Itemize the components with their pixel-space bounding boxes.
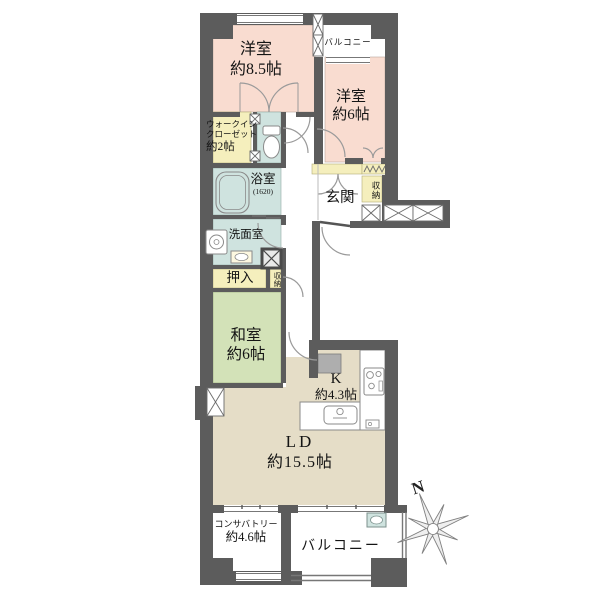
room-label-bedroom2: 洋室 約6帖	[301, 88, 401, 125]
floor-plan: 洋室 約8.5帖 バルコニー 洋室 約6帖 ウォークイン クローゼット 約2帖 …	[0, 0, 600, 600]
washroom-shaft	[262, 249, 281, 268]
room-label-conservatory: コンサバトリー 約4.6帖	[209, 519, 283, 545]
toilet-icon	[263, 126, 280, 158]
slop-sink-icon	[367, 513, 386, 527]
room-label-japanese-room: 和室 約6帖	[207, 327, 285, 365]
room-label-living-dining: LD 約15.5帖	[235, 432, 365, 472]
floor-plan-drawing	[0, 0, 600, 600]
room-label-balcony-top: バルコニー	[322, 37, 374, 47]
room-label-futon-closet: 押入	[218, 270, 262, 286]
common-corridor-hatch	[362, 205, 443, 221]
room-label-bedroom1: 洋室 約8.5帖	[206, 40, 306, 79]
balcony-divider-hatch	[313, 14, 323, 56]
room-label-balcony-bottom: バルコニー	[288, 538, 394, 555]
room-label-bathroom: 浴室 (1620)	[243, 172, 283, 196]
room-label-hall-storage: 収納	[269, 270, 282, 288]
front-door	[320, 220, 350, 255]
room-label-entrance-storage: 収納	[364, 178, 381, 202]
dishwasher-icon	[366, 420, 379, 428]
room-label-wic: ウォークイン クローゼット 約2帖	[203, 119, 258, 154]
room-label-entrance: 玄関	[320, 190, 360, 208]
vanity-sink-icon	[231, 251, 252, 263]
room-label-kitchen: K 約4.3帖	[303, 371, 369, 403]
balcony-corner-block	[371, 558, 407, 587]
room-label-washroom: 洗面室	[224, 228, 268, 242]
kitchen-sink-icon	[324, 406, 357, 424]
shoe-cabinet	[312, 164, 362, 174]
pipe-space-hatch	[207, 388, 224, 416]
